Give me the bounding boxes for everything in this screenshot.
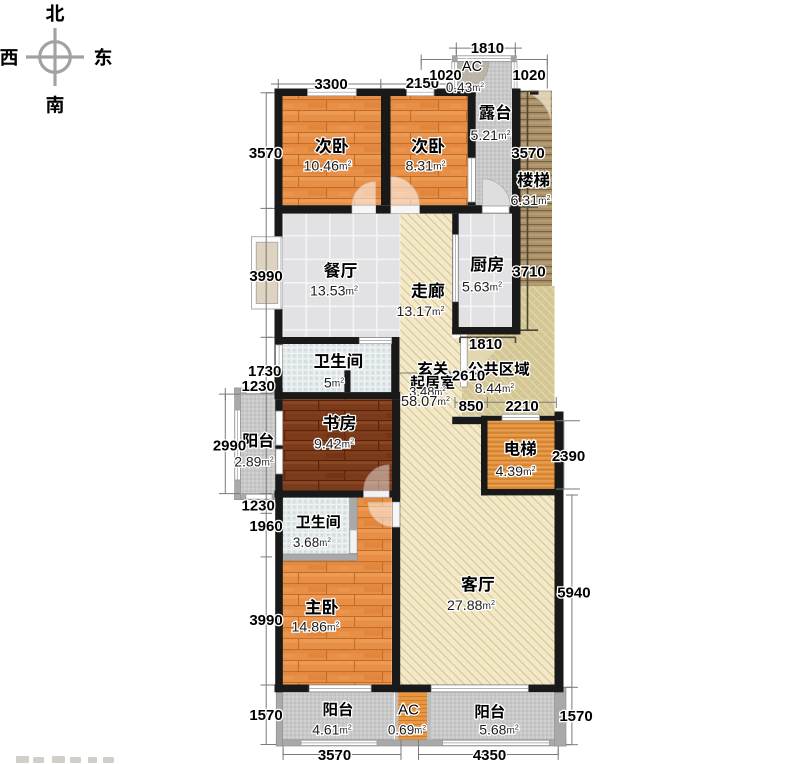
svg-text:1810: 1810 (471, 40, 504, 57)
svg-text:1960: 1960 (249, 518, 282, 535)
svg-text:3990: 3990 (249, 612, 282, 629)
svg-text:3990: 3990 (249, 268, 282, 285)
svg-text:58.07m2: 58.07m2 (401, 394, 450, 410)
svg-text:AC: AC (462, 59, 482, 75)
svg-text:2210: 2210 (505, 398, 538, 415)
svg-text:3570: 3570 (511, 145, 544, 162)
svg-text:1810: 1810 (469, 336, 502, 353)
svg-text:1230: 1230 (242, 498, 275, 515)
svg-text:AC: AC (398, 702, 419, 719)
svg-text:1570: 1570 (559, 708, 592, 725)
svg-text:3300: 3300 (314, 76, 347, 93)
svg-text:5.21m2: 5.21m2 (470, 128, 510, 144)
svg-text:3.68m2: 3.68m2 (293, 535, 331, 550)
svg-text:3570: 3570 (318, 747, 351, 764)
svg-text:13.17m2: 13.17m2 (397, 304, 445, 320)
svg-text:1230: 1230 (242, 378, 275, 395)
svg-text:1020: 1020 (512, 67, 545, 84)
svg-text:2390: 2390 (552, 448, 585, 465)
svg-text:10.46m2: 10.46m2 (304, 159, 352, 175)
svg-text:8.31m2: 8.31m2 (405, 159, 445, 175)
svg-text:5.63m2: 5.63m2 (462, 280, 502, 296)
svg-text:4.39m2: 4.39m2 (495, 464, 535, 480)
svg-text:3570: 3570 (249, 145, 282, 162)
svg-text:850: 850 (459, 398, 484, 415)
svg-text:9.42m2: 9.42m2 (314, 436, 354, 452)
svg-text:2610: 2610 (452, 367, 485, 384)
svg-text:4350: 4350 (473, 747, 506, 764)
svg-text:0.69m2: 0.69m2 (388, 723, 426, 738)
svg-text:14.86m2: 14.86m2 (292, 620, 340, 636)
svg-text:1020: 1020 (429, 68, 461, 84)
svg-text:3710: 3710 (512, 263, 545, 280)
svg-text:27.88m2: 27.88m2 (447, 598, 495, 614)
svg-text:5940: 5940 (557, 584, 590, 601)
svg-text:13.53m2: 13.53m2 (310, 283, 358, 299)
svg-text:2990: 2990 (213, 437, 246, 454)
svg-text:6.31m2: 6.31m2 (510, 193, 550, 209)
svg-text:1570: 1570 (249, 707, 282, 724)
